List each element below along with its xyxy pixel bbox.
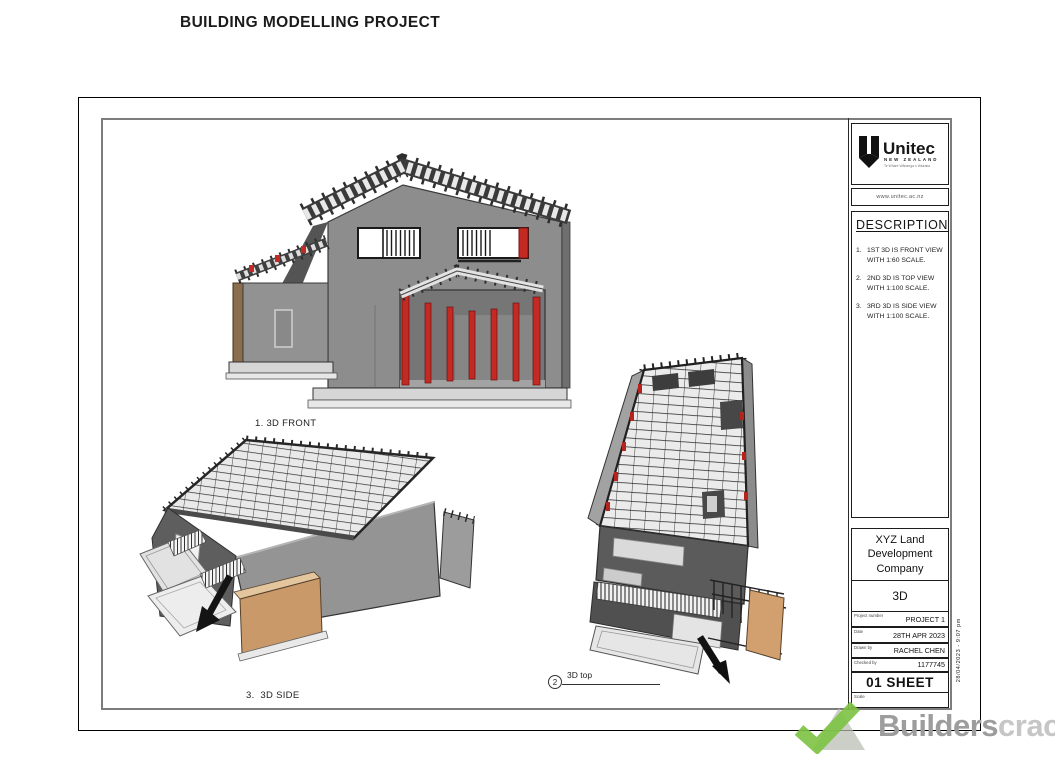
description-heading: DESCRIPTION (856, 218, 944, 232)
timber-panel (746, 590, 784, 660)
builderscrack-check-icon (793, 702, 873, 754)
front-view-drawing (225, 125, 575, 415)
page-title: BUILDING MODELLING PROJECT (180, 14, 440, 32)
description-item: 1. 1ST 3D IS FRONT VIEW WITH 1:60 SCALE. (856, 246, 944, 265)
field-date: Date 28TH APR 2023 (851, 627, 949, 643)
plot-stamp: 28/04/2023 - 9:07 pm (956, 618, 962, 682)
sheet-number: 01 SHEET (851, 672, 949, 693)
timber-edge (233, 283, 243, 363)
description-item: 3. 3RD 3D IS SIDE VIEW WITH 1:100 SCALE. (856, 302, 944, 321)
left-wing (226, 242, 337, 379)
field-checked-by: Checked by 1177745 (851, 658, 949, 672)
top-view-number: 2 (553, 678, 557, 687)
watermark-bold: Builders (878, 708, 998, 743)
logo-website: www.unitec.ac.nz (851, 188, 949, 206)
red-mullion (519, 228, 528, 258)
description-box: DESCRIPTION 1. 1ST 3D IS FRONT VIEW WITH… (851, 211, 949, 518)
top-view-drawing (552, 342, 808, 690)
window-left (358, 228, 420, 258)
logo-region: NEW ZEALAND (884, 157, 938, 162)
logo-tagline: Te Whare Wānanga o Wairaka (884, 164, 930, 168)
title-block-divider (848, 118, 849, 710)
base-plinth (308, 388, 571, 408)
top-view-number-bubble: 2 (548, 675, 562, 689)
builderscrack-watermark: Builderscrack (793, 702, 1055, 754)
logo-box: Unitec NEW ZEALAND Te Whare Wānanga o Wa… (851, 123, 949, 185)
side-view-title: 3. 3D SIDE (246, 690, 299, 701)
company-name: XYZ Land Development Company (851, 528, 949, 581)
unitec-u-icon (859, 136, 879, 168)
unitec-logo: Unitec NEW ZEALAND Te Whare Wānanga o Wa… (855, 130, 945, 178)
description-item: 2. 2ND 3D IS TOP VIEW WITH 1:100 SCALE. (856, 274, 944, 293)
top-view-title: 3D top (567, 670, 592, 680)
window-right (458, 228, 528, 261)
drawing-sheet-page: BUILDING MODELLING PROJECT (0, 0, 1055, 758)
view-title-underline (562, 684, 660, 685)
watermark-text: Builderscrack (878, 708, 1055, 744)
field-drawn-by: Drawn by RACHEL CHEN (851, 643, 949, 658)
sheet-name: 3D (851, 580, 949, 612)
watermark-light: crack (998, 708, 1055, 743)
right-slab (440, 512, 474, 588)
field-project-number: Project number PROJECT 1 (851, 611, 949, 627)
side-view-drawing (138, 428, 486, 686)
logo-name: Unitec (883, 139, 935, 158)
